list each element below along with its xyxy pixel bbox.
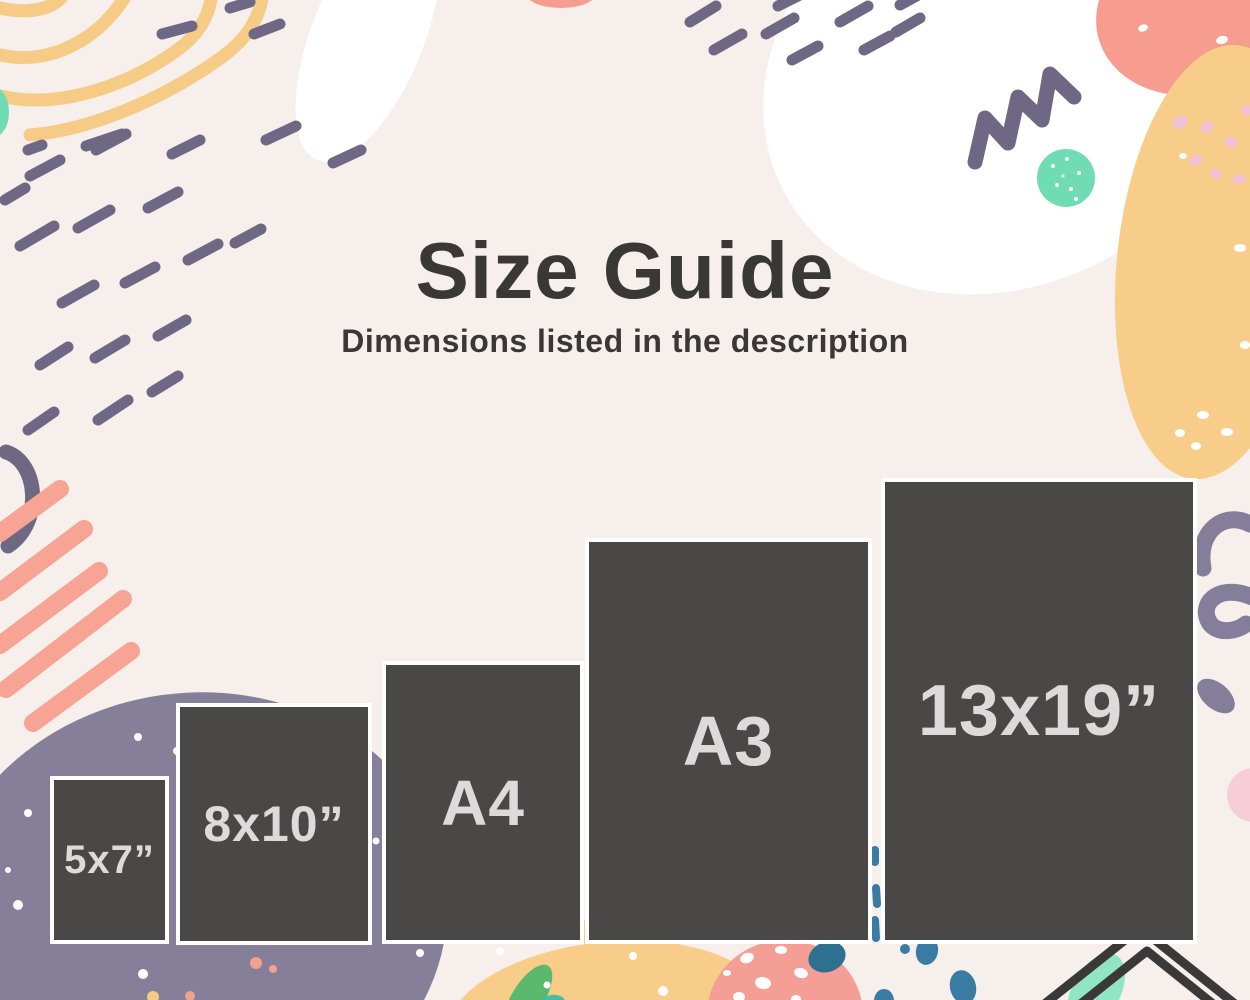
coral-stripes-left (0, 489, 131, 723)
size-card-13x19: 13x19” (881, 478, 1197, 944)
yellow-contour-squiggles (0, 0, 263, 135)
coral-sliver-top (525, 0, 597, 8)
page-subtitle: Dimensions listed in the description (0, 325, 1250, 357)
page-title: Size Guide (0, 231, 1250, 311)
size-card-5x7: 5x7” (50, 776, 169, 944)
purple-hook-squiggles-right (1191, 520, 1250, 720)
size-label-8x10: 8x10” (203, 795, 344, 853)
size-label-5x7: 5x7” (64, 838, 155, 883)
white-leaf-top-left (266, 0, 471, 181)
size-card-a3: A3 (585, 538, 872, 944)
pink-dotted-circle-bottom (707, 936, 863, 1000)
size-label-a3: A3 (683, 701, 774, 781)
pink-circle-right-edge (1227, 768, 1250, 822)
heading-block: Size Guide Dimensions listed in the desc… (0, 231, 1250, 357)
teal-speckled-circle (1037, 149, 1095, 207)
size-label-a4: A4 (441, 766, 525, 840)
size-card-8x10: 8x10” (176, 703, 372, 945)
size-card-a4: A4 (382, 661, 584, 944)
size-guide-poster: Size Guide Dimensions listed in the desc… (0, 0, 1250, 1000)
size-label-13x19: 13x19” (918, 670, 1160, 752)
